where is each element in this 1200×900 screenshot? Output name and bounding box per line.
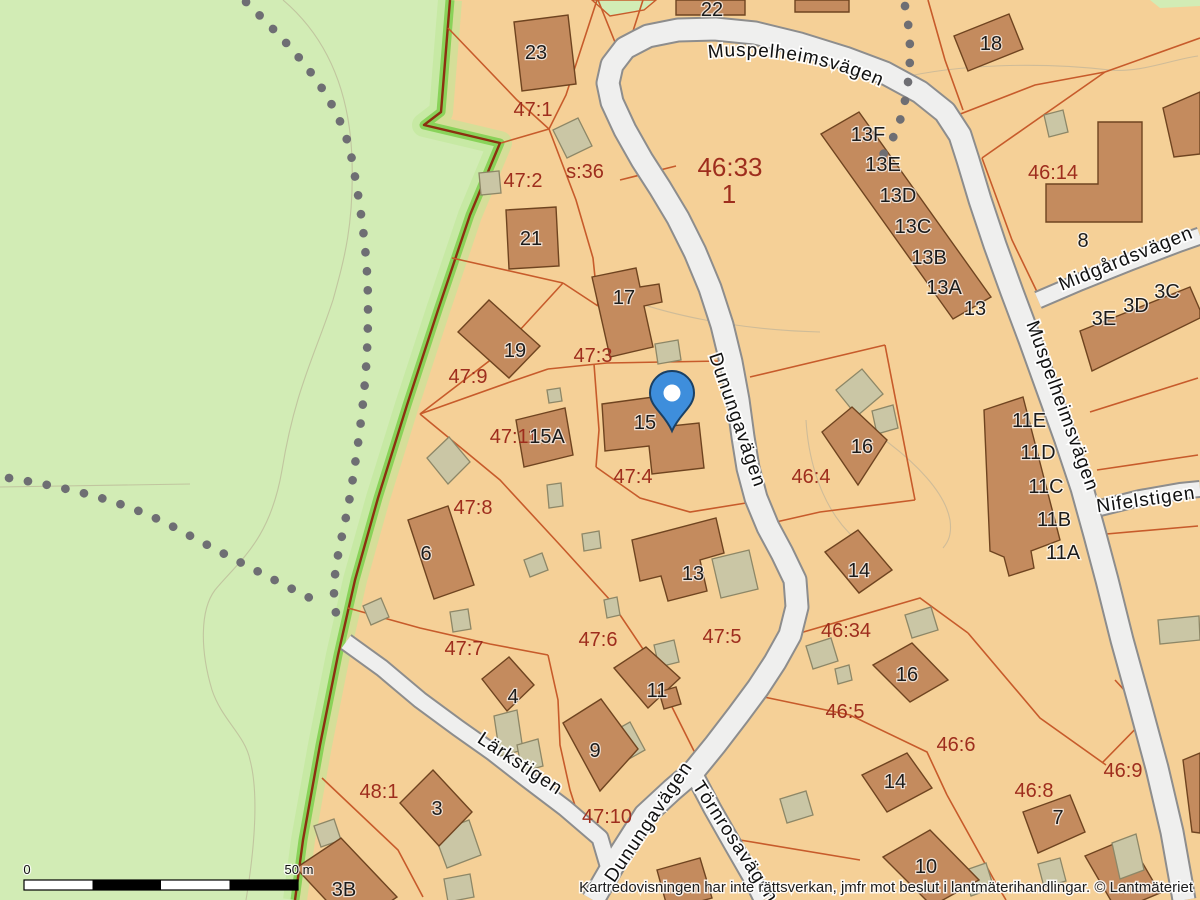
building-label: 21 <box>520 228 542 250</box>
parcel-label: 47:5 <box>703 626 742 648</box>
building-label: 22 <box>701 0 723 21</box>
parcel-label: 47:3 <box>574 345 613 367</box>
parcel-label: 47:6 <box>579 629 618 651</box>
parcel-label: 46:5 <box>826 701 865 723</box>
outbuilding <box>1044 110 1068 137</box>
parcel-label: 46:33 <box>697 152 762 182</box>
building-label: 11A <box>1046 542 1081 564</box>
building-label: 13D <box>880 185 917 207</box>
building-label: 19 <box>504 340 526 362</box>
building-label: 9 <box>589 740 600 762</box>
building-label: 4 <box>507 686 518 708</box>
parcel-label: 46:34 <box>821 620 871 642</box>
outbuilding <box>444 874 474 900</box>
scale-end-label: 50 m <box>285 862 314 877</box>
building-label: 3E <box>1092 308 1116 330</box>
parcel-label: 46:8 <box>1015 780 1054 802</box>
building-footprint <box>795 0 849 12</box>
parcel-label: 47:10 <box>582 806 632 828</box>
parcel-label: s:36 <box>566 161 604 183</box>
outbuilding <box>712 550 758 598</box>
map-canvas[interactable]: 47:1 47:2 s:36 46:33 1 46:14 47:3 47:9 4… <box>0 0 1200 900</box>
building-label: 3D <box>1123 295 1149 317</box>
building-label: 13 <box>964 298 986 320</box>
building-label: 10 <box>915 856 937 878</box>
parcel-label: 47:4 <box>614 466 653 488</box>
building-label: 11E <box>1012 410 1046 432</box>
building-label: 11B <box>1037 509 1071 531</box>
parcel-label: 46:4 <box>792 466 831 488</box>
outbuilding <box>1158 616 1200 644</box>
building-label: 16 <box>896 664 918 686</box>
outbuilding <box>547 388 562 403</box>
pin-center-dot <box>664 385 681 402</box>
map-attribution: Kartredovisningen har inte rättsverkan, … <box>579 879 1194 896</box>
building-label: 18 <box>980 33 1002 55</box>
parcel-label: 47:2 <box>504 170 543 192</box>
parcel-label: 48:1 <box>360 781 399 803</box>
building-label: 23 <box>525 42 547 64</box>
parcel-label: 47:9 <box>449 366 488 388</box>
parcel-label: 47:8 <box>454 497 493 519</box>
building-label: 15 <box>634 412 656 434</box>
parcel-label: 46:6 <box>937 734 976 756</box>
building-label: 14 <box>884 771 906 793</box>
parcel-label: 46:9 <box>1104 760 1143 782</box>
outbuilding <box>655 340 681 364</box>
outbuilding <box>604 597 620 618</box>
building-label: 13E <box>865 154 901 176</box>
scale-start-label: 0 <box>23 862 30 877</box>
building-label: 13A <box>926 277 962 299</box>
building-label: 13 <box>682 563 704 585</box>
building-label: 13C <box>895 216 932 238</box>
outbuilding <box>479 171 501 195</box>
building-label: 8 <box>1077 230 1088 252</box>
building-label: 3C <box>1154 281 1180 303</box>
building-label: 14 <box>848 560 870 582</box>
scale-bar-segment <box>93 880 162 890</box>
parcel-label: 46:14 <box>1028 162 1078 184</box>
building-label: 17 <box>613 287 635 309</box>
building-label: 16 <box>851 436 873 458</box>
building-label: 13B <box>911 247 947 269</box>
outbuilding <box>835 665 852 684</box>
parcel-label: 47:7 <box>445 638 484 660</box>
outbuilding <box>547 483 563 508</box>
parcel-label: 47:1 <box>514 99 553 121</box>
building-label: 11D <box>1020 442 1055 464</box>
outbuilding <box>582 531 601 551</box>
outbuilding <box>450 609 471 632</box>
building-label: 3 <box>431 798 442 820</box>
building-label: 6 <box>420 543 431 565</box>
building-label: 13F <box>851 124 885 146</box>
building-label: 7 <box>1052 807 1063 829</box>
parcel-label: 1 <box>722 179 736 209</box>
building-label: 15A <box>529 426 565 448</box>
building-label: 3B <box>332 879 356 900</box>
building-label: 11 <box>647 680 668 702</box>
building-label: 11C <box>1028 476 1063 498</box>
scale-bar-segment <box>230 880 299 890</box>
